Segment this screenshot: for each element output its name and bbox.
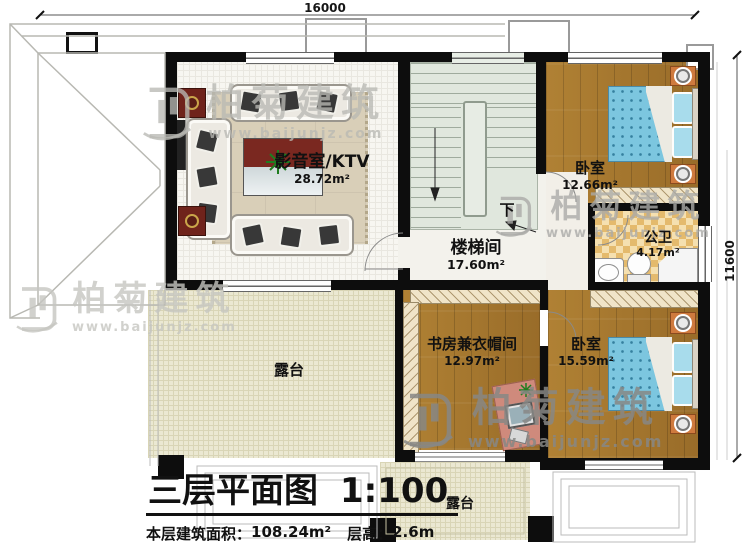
sink-basin — [598, 264, 619, 281]
sofa-top — [230, 84, 352, 122]
floor-area-value: 108.24m² — [251, 523, 331, 544]
wall-bath-left — [588, 211, 595, 290]
room-label-bedroom-top: 卧室 12.66m² — [548, 160, 632, 192]
sofa-cushion — [238, 89, 263, 114]
brand-logo-icon — [12, 284, 62, 334]
room-label-terrace-left: 露台 — [257, 362, 321, 380]
tv-panel — [177, 120, 186, 170]
floor-area-label: 本层建筑面积： — [146, 523, 251, 544]
window-bedroom-bottom — [585, 460, 663, 470]
floor-height-value: 2.6m — [392, 523, 434, 544]
room-area: 12.66m² — [548, 178, 632, 192]
sofa-cushion — [278, 224, 303, 249]
bed-pillow — [672, 375, 694, 406]
bed-blanket-fold — [646, 337, 672, 411]
dormer-window-right — [508, 20, 570, 56]
bed-pillow — [672, 342, 694, 373]
speaker-box-bottom — [178, 206, 206, 236]
window-ktv — [246, 52, 334, 64]
room-name: 公卫 — [644, 230, 672, 246]
room-area: 17.60m² — [412, 258, 540, 273]
window-bathroom — [698, 226, 712, 282]
floor-plan-canvas: 影音室/KTV 28.72m² 楼梯间 17.60m² 卧室 12.66m² 公… — [0, 0, 750, 553]
room-name: 卧室 — [575, 159, 605, 177]
wardrobe-bedroom-bottom — [590, 290, 700, 308]
window-terrace — [223, 280, 331, 292]
nightstand — [670, 414, 696, 434]
title-block: 三层平面图 1:100 本层建筑面积： 108.24m² 层高： 2.6m — [146, 474, 458, 544]
nightstand — [670, 66, 696, 86]
room-area: 4.17m² — [616, 247, 700, 260]
sofa-cushion — [194, 164, 219, 189]
wall-connector — [540, 450, 548, 470]
sliding-door-terrace — [415, 452, 505, 462]
nightstand — [670, 312, 696, 334]
room-name: 露台 — [274, 361, 304, 379]
room-label-stair-hall: 楼梯间 17.60m² — [412, 238, 540, 273]
speaker-box-top — [178, 88, 206, 118]
stair-treads-left-flight — [411, 107, 461, 229]
wall-study-bottom-left — [395, 450, 415, 462]
wall-stair-study — [398, 280, 548, 290]
sofa-cushion — [314, 89, 340, 115]
skylight-box — [66, 32, 98, 54]
bed-top-bedroom — [608, 86, 698, 162]
stair-treads-right-flight — [487, 107, 537, 169]
wall-stair-bedroom — [536, 62, 546, 174]
window-stair — [452, 52, 524, 64]
stair-newel — [463, 101, 487, 217]
drawing-title: 三层平面图 1:100 — [146, 474, 458, 516]
room-name: 影音室/KTV — [274, 152, 369, 172]
room-name: 书房兼衣帽间 — [427, 335, 517, 353]
room-label-bathroom: 公卫 4.17m² — [616, 230, 700, 259]
room-area: 12.97m² — [400, 354, 544, 368]
sofa-cushion — [194, 128, 221, 155]
wall-ktv-stair — [398, 62, 410, 237]
laptop — [508, 427, 529, 444]
wardrobe-study-top — [410, 288, 542, 304]
drawing-name: 三层平面图 — [148, 474, 318, 508]
bed-pillow — [672, 126, 694, 158]
room-name: 楼梯间 — [451, 238, 502, 258]
wall-study-bedroom-upper — [540, 290, 548, 310]
wardrobe-study-left — [403, 302, 419, 454]
room-name: 卧室 — [571, 335, 601, 353]
room-area: 28.72m² — [252, 172, 392, 186]
room-area: 15.59m² — [544, 354, 628, 368]
floor-height-label: 层高： — [347, 523, 392, 544]
nightstand — [670, 164, 696, 184]
sofa-bottom — [230, 214, 354, 256]
sofa-cushion — [317, 223, 342, 248]
window-bedroom-top — [568, 52, 662, 64]
room-label-study: 书房兼衣帽间 12.97m² — [400, 336, 544, 368]
wall-bedroom-bath — [588, 203, 710, 211]
drawing-scale: 1:100 — [340, 474, 448, 508]
room-label-ktv: 影音室/KTV 28.72m² — [252, 152, 392, 186]
sofa-cushion — [240, 222, 266, 248]
sofa-cushion — [277, 89, 302, 114]
dormer-window-left — [305, 18, 367, 56]
drawing-subtitle: 本层建筑面积： 108.24m² 层高： 2.6m — [146, 523, 458, 544]
down-text: 下 — [499, 201, 514, 219]
bed-blanket-fold — [646, 86, 672, 162]
computer-monitor — [504, 401, 536, 429]
corner-post — [528, 516, 554, 542]
dimension-right-label: 11600 — [723, 231, 737, 291]
room-label-bedroom-bottom: 卧室 15.59m² — [544, 336, 628, 368]
dimension-top-label: 16000 — [290, 1, 360, 15]
wall-study-terrace — [395, 290, 403, 462]
wall-bath-bottom — [588, 282, 710, 290]
wall-left — [165, 52, 177, 290]
bed-pillow — [672, 92, 694, 124]
stair-down-label: 下 — [494, 202, 520, 220]
